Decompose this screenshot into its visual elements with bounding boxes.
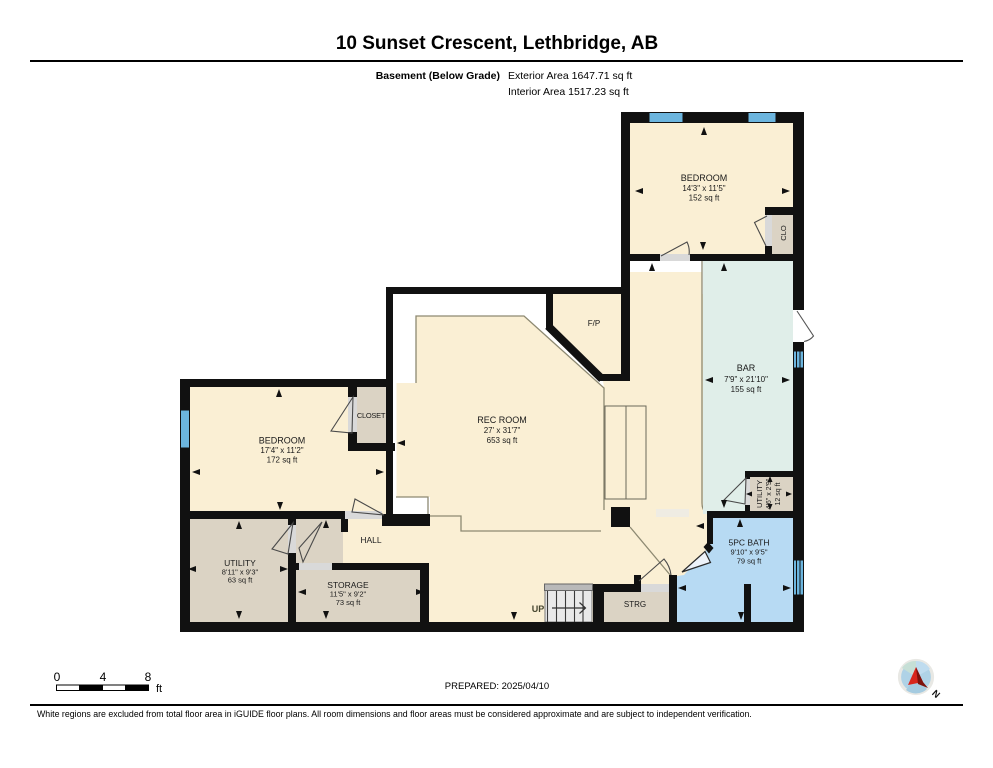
svg-text:152 sq ft: 152 sq ft [689, 194, 720, 203]
svg-text:653 sq ft: 653 sq ft [487, 436, 518, 445]
svg-text:8: 8 [145, 670, 152, 684]
svg-text:9'10" x 9'5": 9'10" x 9'5" [731, 548, 768, 557]
svg-text:Interior Area 1517.23 sq ft: Interior Area 1517.23 sq ft [508, 86, 629, 98]
svg-text:BEDROOM: BEDROOM [681, 173, 728, 183]
svg-text:10 Sunset Crescent, Lethbridge: 10 Sunset Crescent, Lethbridge, AB [336, 33, 658, 54]
svg-text:CLOSET: CLOSET [357, 411, 386, 420]
svg-text:63 sq ft: 63 sq ft [228, 576, 254, 585]
svg-text:Exterior Area 1647.71 sq ft: Exterior Area 1647.71 sq ft [508, 70, 632, 82]
svg-text:7'9" x 21'10": 7'9" x 21'10" [724, 375, 768, 384]
svg-text:17'4" x 11'2": 17'4" x 11'2" [260, 446, 303, 455]
svg-text:73 sq ft: 73 sq ft [336, 598, 362, 607]
svg-text:UTILITY: UTILITY [755, 480, 764, 508]
svg-text:HALL: HALL [360, 535, 382, 545]
svg-text:155 sq ft: 155 sq ft [731, 385, 762, 394]
svg-text:CLO: CLO [779, 225, 788, 241]
svg-text:White regions are excluded fro: White regions are excluded from total fl… [37, 709, 752, 719]
svg-text:PREPARED: 2025/04/10: PREPARED: 2025/04/10 [445, 681, 549, 692]
svg-text:4: 4 [100, 670, 107, 684]
svg-text:79 sq ft: 79 sq ft [737, 557, 763, 566]
svg-text:ft: ft [156, 683, 162, 695]
svg-text:STRG: STRG [624, 600, 646, 609]
svg-text:0: 0 [54, 670, 61, 684]
svg-text:STORAGE: STORAGE [327, 580, 369, 590]
svg-text:Basement (Below Grade): Basement (Below Grade) [376, 70, 500, 82]
svg-text:12 sq ft: 12 sq ft [775, 482, 782, 505]
svg-text:F/P: F/P [588, 319, 600, 328]
svg-text:UP: UP [532, 604, 545, 614]
svg-text:BEDROOM: BEDROOM [259, 436, 306, 446]
svg-text:14'3" x 11'5": 14'3" x 11'5" [682, 184, 725, 193]
svg-text:5PC BATH: 5PC BATH [729, 538, 770, 548]
svg-text:UTILITY: UTILITY [224, 558, 256, 568]
svg-text:REC ROOM: REC ROOM [477, 415, 527, 425]
svg-text:BAR: BAR [737, 363, 756, 373]
svg-text:172 sq ft: 172 sq ft [267, 456, 298, 465]
svg-text:27' x 31'7": 27' x 31'7" [484, 426, 521, 435]
